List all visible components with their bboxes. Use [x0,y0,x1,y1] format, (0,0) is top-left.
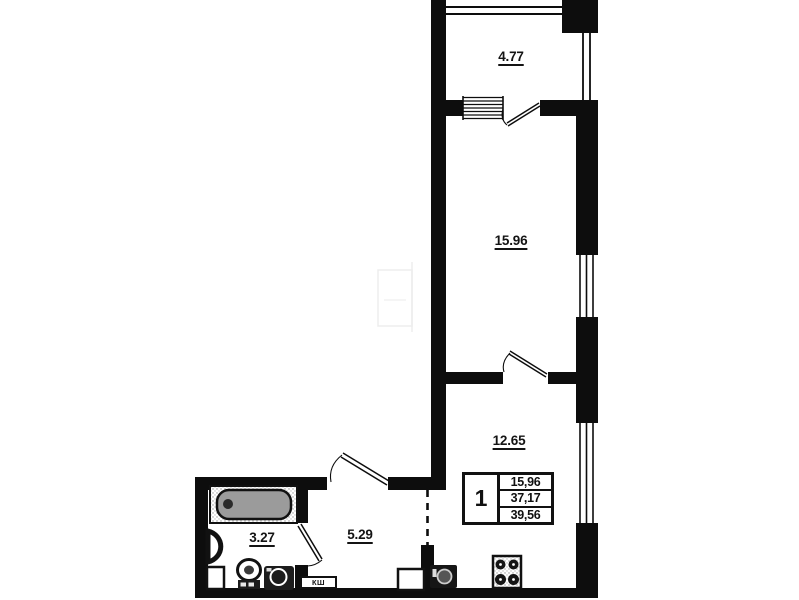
stamp-values: 15,96 37,17 39,56 [500,475,551,522]
room-area-label-living: 15.96 [476,233,546,248]
stamp-room-count: 1 [465,475,500,522]
room-area-label-kitchen-living: 12.65 [474,433,544,448]
washing-machine-icon [264,566,294,590]
stamp-total-area: 39,56 [500,508,551,522]
wash-basin-icon [208,531,221,562]
living-window [580,255,593,317]
kitchen-cabinet [398,569,424,590]
room-area-label-bathroom: 3.27 [227,530,297,545]
balcony-window [463,96,503,120]
duct-box-label: КШ [300,576,337,589]
interior-door [503,351,547,377]
plan-drawing [0,0,799,600]
toilet-icon [238,560,261,590]
stamp-living-area: 15,96 [500,475,551,491]
bathroom-door [298,524,322,566]
stove-icon [493,556,521,588]
floor-plan: 4.77 15.96 12.65 5.29 3.27 1 15,96 37,17… [0,0,799,600]
room-area-label-balcony: 4.77 [476,49,546,64]
balcony-side-glazing [583,33,590,100]
room-area-label-hallway: 5.29 [325,527,395,542]
balcony-railing [446,7,562,14]
bathtub-icon [210,486,297,523]
area-stamp: 1 15,96 37,17 39,56 [462,472,554,525]
kitchen-sink-icon [430,565,457,588]
stamp-apartment-area: 37,17 [500,491,551,507]
kitchen-window [580,423,593,523]
watermark [378,262,412,332]
entrance-door [330,453,389,485]
balcony-door [502,103,540,126]
bathroom-niche [207,567,224,589]
